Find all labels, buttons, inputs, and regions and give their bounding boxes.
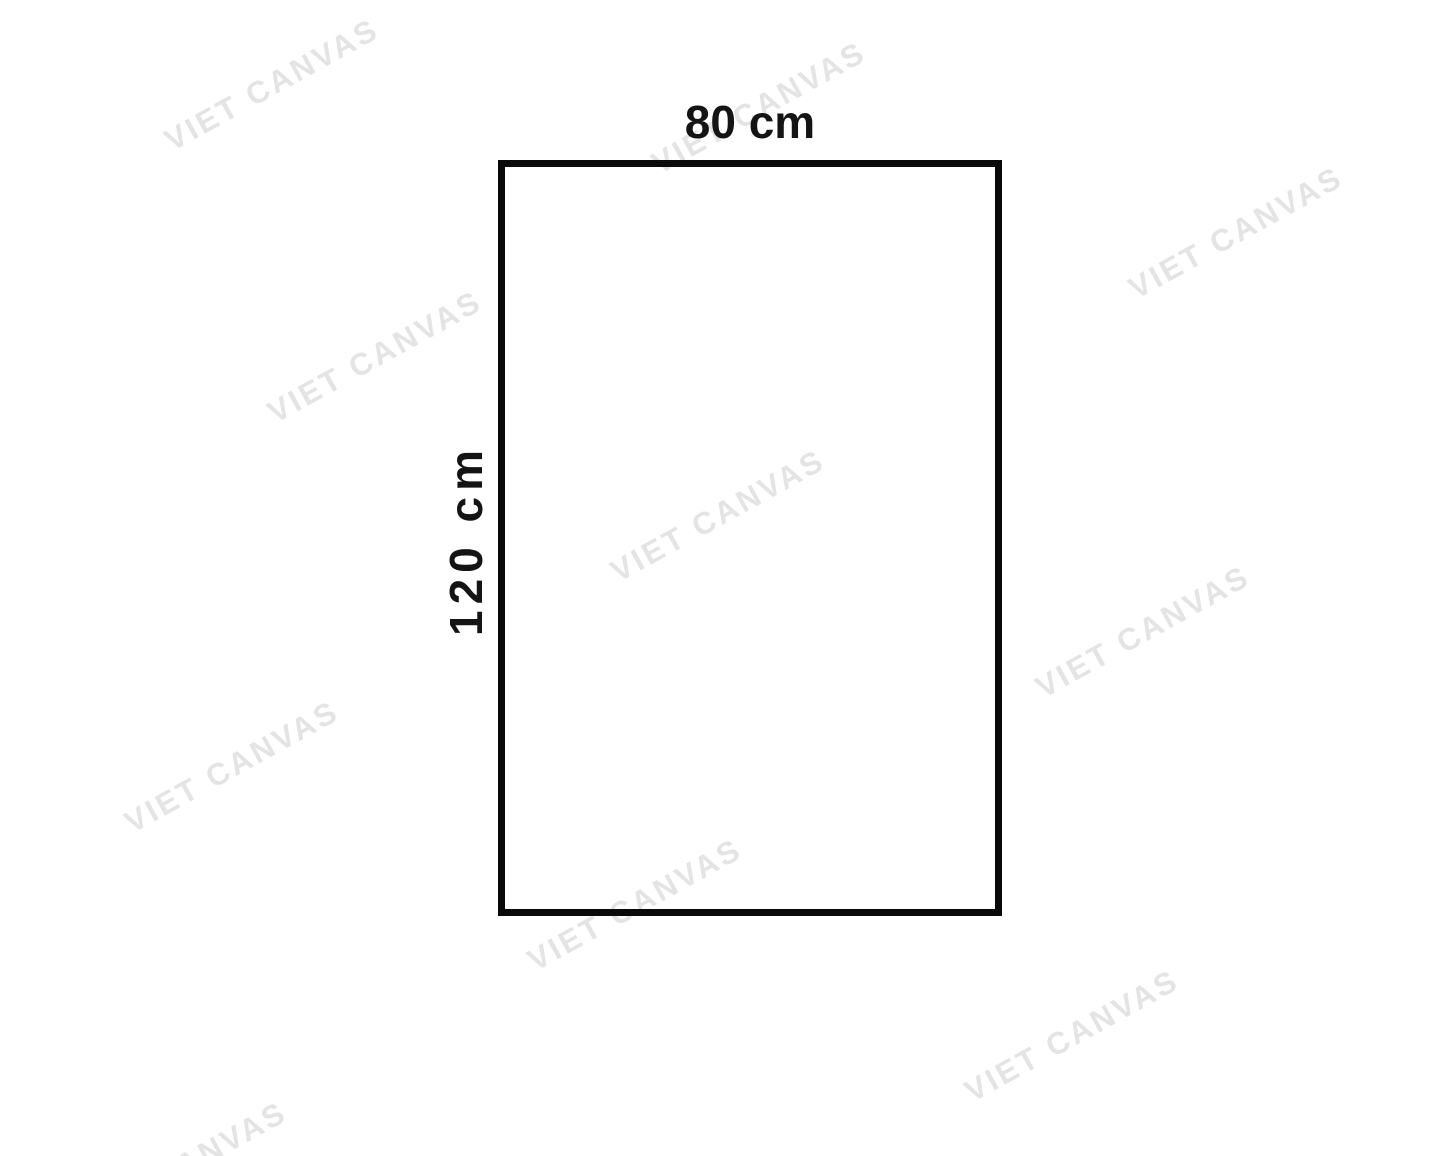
watermark-text-6: VIET CANVAS [119, 693, 346, 840]
watermark-text-8: VIET CANVAS [959, 962, 1186, 1109]
page: VIET CANVASVIET CANVASVIET CANVASVIET CA… [0, 0, 1445, 1156]
watermark-text-5: VIET CANVAS [1030, 558, 1257, 705]
height-dimension-label: 120 cm [439, 444, 493, 636]
width-dimension-label: 80 cm [685, 95, 815, 149]
watermark-text-2: VIET CANVAS [1123, 159, 1350, 306]
canvas-size-rectangle [498, 160, 1002, 916]
watermark-text-9: VIET CANVAS [67, 1094, 294, 1156]
watermark-text-0: VIET CANVAS [159, 11, 386, 158]
watermark-text-3: VIET CANVAS [262, 283, 489, 430]
